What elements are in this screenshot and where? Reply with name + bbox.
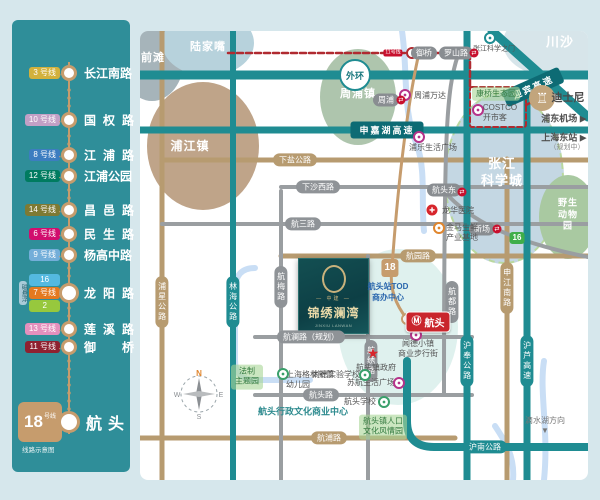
station-dot	[59, 283, 79, 303]
svg-text:S: S	[197, 414, 202, 421]
svg-text:E: E	[219, 392, 224, 399]
station-dot	[61, 147, 77, 163]
transfer-icon	[397, 96, 406, 105]
label-hangtou-road: 航头路	[303, 388, 339, 401]
label-waihuan: 外环	[339, 59, 371, 91]
line-badge: 12 号线	[25, 170, 60, 182]
line-badges: 8 号线	[14, 149, 60, 161]
label-hangmei: 航梅路	[274, 266, 287, 308]
line-badge: 2	[29, 300, 60, 312]
line-badges: 6 号线	[14, 228, 60, 240]
poi-shangde-school: 尚德实验学校	[312, 370, 360, 380]
metro-line-sidebar: 3 号线←长江南路10 号线←国权路8 号线←江浦路12 号线←江浦公园14 号…	[12, 20, 130, 472]
poi-zhoupu-wanda: 周浦万达	[414, 91, 446, 101]
poi-jinma-base: 金马生鲜 产业基地	[446, 223, 478, 243]
station-name: 长江南路	[84, 65, 132, 82]
station-name: 江浦路	[84, 147, 134, 164]
station-dot	[61, 168, 77, 184]
svg-text:W: W	[174, 392, 181, 399]
label-linhai: 林海公路	[226, 276, 239, 328]
transfer-icon	[470, 49, 479, 58]
station-dot	[61, 112, 77, 128]
label-xiashaxi: 下沙西路	[296, 180, 340, 193]
poi-pule-plaza: 浦乐生活广场	[409, 143, 457, 153]
metro-logo-icon	[412, 317, 422, 327]
label-qiantan: 前滩	[141, 51, 165, 65]
government-star-icon	[367, 346, 380, 360]
label-hulu: 沪芦高速	[520, 335, 533, 387]
station-name: 航头	[425, 315, 445, 330]
line-badges: 10 号线	[14, 114, 60, 126]
label-hangpu: 航浦路	[311, 431, 347, 444]
station-dot	[58, 411, 80, 433]
station-name: 御桥	[84, 339, 134, 356]
station-luoshan: 罗山路	[439, 47, 473, 60]
project-card: — 中建 — 锦绣澜湾 JINXIU LANWAN	[298, 258, 369, 334]
line-badge: 14 号线	[25, 204, 60, 216]
line-badges: 11 号线	[14, 341, 60, 353]
poi-fazhi-park: 法制 主题园	[231, 365, 263, 390]
line-16-badge: 16	[510, 232, 525, 244]
label-zhangjiang: 张江 科学城	[481, 156, 523, 190]
station-dot	[61, 247, 77, 263]
line-badge: 7 号线	[29, 287, 60, 299]
station-zhoupu: 周浦	[373, 94, 399, 107]
dishui-direction: 滴水湖方向 ▼	[525, 415, 565, 435]
label-puxing: 浦星公路	[155, 276, 168, 328]
station-hangtoudong: 航头东	[427, 184, 461, 197]
suhang-marker-icon	[393, 377, 405, 389]
label-chuansha: 川沙	[546, 35, 574, 52]
line-18-badge: 18号线	[18, 402, 62, 442]
station-name: 航头	[86, 410, 130, 434]
project-name: 锦绣澜湾	[307, 304, 359, 321]
line-badges: 12 号线	[14, 170, 60, 182]
poi-civic-center: 航头行政文化商业中心	[258, 405, 348, 418]
line-badge: 16	[29, 274, 60, 286]
poi-hangtou-school: 航头学校	[344, 397, 376, 407]
shangde-marker-icon	[359, 369, 371, 381]
line-badges: 3 号线	[14, 67, 60, 79]
line-badges: 磁悬浮167 号线2	[14, 274, 60, 312]
transfer-icon	[458, 188, 467, 197]
sidebar-footer: 线路示意图	[22, 444, 55, 454]
maglev-badge: 磁悬浮	[19, 281, 27, 305]
poi-culture-park: 航头镇人口 文化风情园	[359, 415, 407, 440]
line-badge: 9 号线	[29, 249, 60, 261]
poi-wende-town: 闻德小镇 商业步行街	[398, 339, 438, 359]
label-lujiazui: 陆家嘴	[190, 40, 226, 54]
line-suffix: 号线	[44, 411, 56, 420]
line-badge: 11 号线	[25, 341, 60, 353]
station-dot	[61, 202, 77, 218]
station-dot	[61, 339, 77, 355]
line-badge: 3 号线	[29, 67, 60, 79]
hospital-cross-icon	[427, 205, 438, 216]
project-logo-icon	[322, 265, 346, 293]
line-number: 18	[24, 402, 43, 442]
compass-icon: N E S W	[172, 367, 226, 421]
station-name: 国权路	[84, 112, 134, 129]
zhangjiang-gate-marker-icon	[484, 32, 496, 44]
label-pujiang: 浦江镇	[170, 139, 209, 155]
poi-tod-center: 航头站TOD 商办中心	[368, 282, 409, 304]
poi-kangqiao-park: 康桥生态园	[472, 87, 520, 101]
area-map: 前滩 陆家嘴 浦江镇 周浦镇 张江 科学城 川沙 野生 动物园 外环 申嘉湖高速…	[140, 31, 588, 480]
project-brand: — 中建 —	[316, 295, 351, 302]
label-hufeng: 沪奉公路	[460, 335, 473, 387]
poi-pudong-airport: 浦东机场 ▶	[541, 112, 586, 125]
poi-longhua-hospital: 龙华医院	[442, 206, 474, 216]
label-hanglan: 航澜路（规划）	[277, 330, 345, 343]
label-wildlife-park: 野生 动物园	[558, 197, 578, 232]
line-badge: 13 号线	[25, 323, 60, 335]
line-badge: 6 号线	[29, 228, 60, 240]
label-shenjiangnan: 申江南路	[500, 262, 513, 314]
poi-planning-note: （规划中）	[550, 142, 585, 152]
line-badges: 13 号线	[14, 323, 60, 335]
pule-plaza-marker-icon	[413, 131, 425, 143]
station-name: 民生路	[84, 226, 134, 243]
station-name: 龙阳路	[84, 285, 134, 302]
line-18-badge-map: 18	[381, 259, 398, 277]
station-name: 莲溪路	[84, 321, 134, 338]
label-hangsan: 航三路	[285, 217, 321, 230]
dotted-line-segment	[67, 357, 71, 415]
station-dot	[61, 226, 77, 242]
label-hangyuan: 航园路	[400, 249, 436, 262]
station-hangtou: 航头	[406, 312, 451, 333]
line-badges: 9 号线	[14, 249, 60, 261]
station-name: 昌邑路	[84, 202, 134, 219]
line-badge: 10 号线	[25, 114, 60, 126]
poi-disney: 迪士尼	[552, 89, 585, 105]
label-hunan: 沪南公路	[463, 440, 507, 453]
station-dot	[61, 65, 77, 81]
poi-costco: COSTCO 开市客	[483, 103, 517, 123]
line-badge: 8 号线	[29, 149, 60, 161]
dotted-line-segment	[67, 86, 71, 112]
hangtou-school-marker-icon	[378, 396, 390, 408]
line-badges: 14 号线	[14, 204, 60, 216]
poi-zhangjiang-gate: 张江科学之门	[473, 46, 515, 55]
line-11-badge: 11号线	[383, 50, 402, 57]
station-yuqiao: 御桥	[411, 47, 437, 60]
label-xiayan: 下盐公路	[273, 153, 317, 166]
transfer-icon	[493, 225, 502, 234]
project-subtitle: JINXIU LANWAN	[315, 323, 352, 328]
location-map-page: 3 号线←长江南路10 号线←国权路8 号线←江浦路12 号线←江浦公园14 号…	[0, 0, 600, 500]
station-name: 江浦公园	[84, 168, 132, 185]
jinma-marker-icon	[433, 222, 445, 234]
station-dot	[61, 321, 77, 337]
svg-text:N: N	[196, 369, 202, 378]
station-name: 杨高中路	[84, 247, 132, 264]
dotted-line-segment	[67, 304, 71, 322]
